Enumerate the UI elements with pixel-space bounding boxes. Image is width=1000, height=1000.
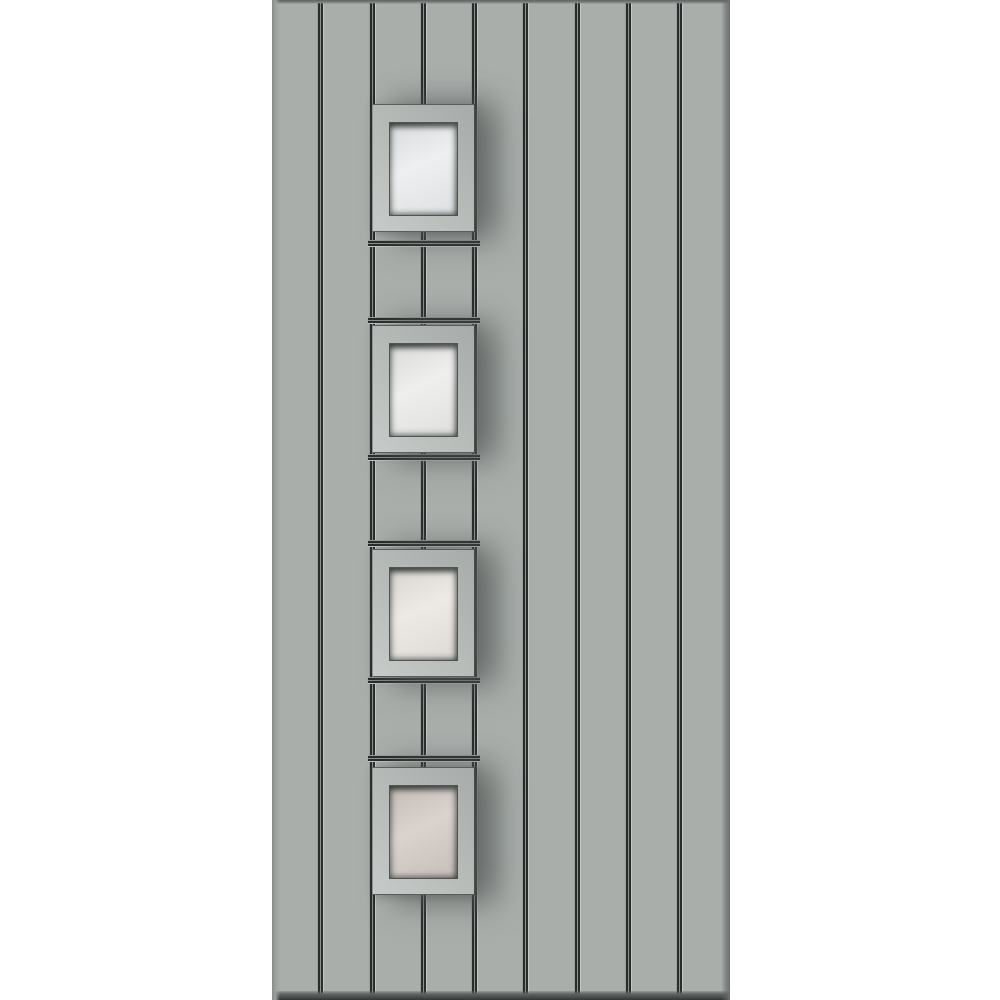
plank-groove-7 [625, 3, 632, 997]
plank-groove-6 [574, 3, 581, 997]
rail-groove-gap1-bottom [368, 317, 480, 324]
plank-groove-8 [676, 3, 683, 997]
glass-pane-1 [389, 122, 458, 216]
door-top-edge [272, 0, 730, 4]
door-slab [272, 0, 730, 1000]
door-lite-2 [372, 325, 475, 453]
rail-groove-gap2-top [368, 454, 480, 461]
glass-pane-4 [389, 785, 458, 879]
door-lite-1 [372, 104, 475, 232]
product-photo-canvas: { "scene": { "description": "Light grey … [0, 0, 1000, 1000]
rail-groove-gap3-top [368, 677, 480, 684]
rail-groove-gap1-top [368, 240, 480, 247]
door-lite-3 [372, 549, 475, 677]
door-bottom-edge [272, 991, 730, 1000]
rail-groove-gap2-bottom [368, 540, 480, 547]
door-right-edge [721, 0, 730, 1000]
rail-groove-gap3-bottom [368, 755, 480, 762]
plank-groove-1 [317, 3, 324, 997]
door-left-edge [272, 0, 280, 1000]
door-lite-4 [372, 767, 475, 895]
glass-pane-2 [389, 343, 458, 437]
glass-pane-3 [389, 567, 458, 661]
plank-groove-5 [522, 3, 529, 997]
